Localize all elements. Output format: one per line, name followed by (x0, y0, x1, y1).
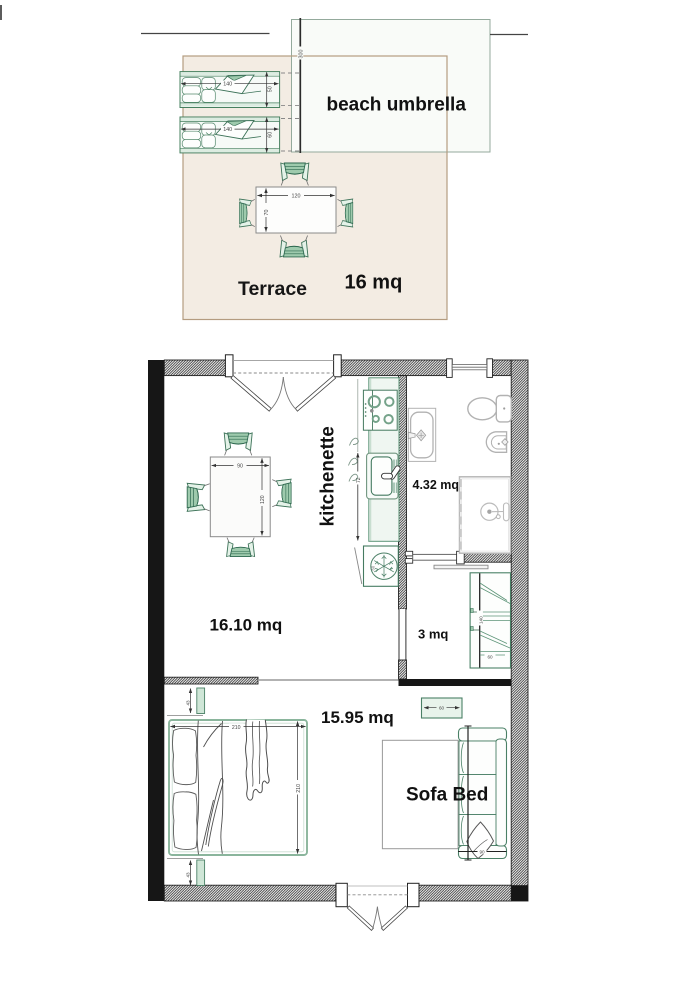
svg-text:120: 120 (292, 194, 301, 200)
svg-text:72: 72 (356, 477, 362, 483)
svg-text:Sofa Bed: Sofa Bed (406, 785, 488, 806)
svg-text:60: 60 (268, 132, 274, 138)
svg-text:beach umbrella: beach umbrella (327, 95, 467, 116)
svg-text:43: 43 (185, 872, 190, 878)
svg-text:60: 60 (487, 655, 493, 660)
svg-text:70: 70 (264, 210, 270, 216)
svg-text:210: 210 (296, 784, 302, 793)
svg-text:210: 210 (232, 725, 241, 731)
svg-text:60: 60 (371, 565, 376, 570)
svg-text:43: 43 (185, 700, 190, 706)
svg-text:16 mq: 16 mq (345, 272, 403, 294)
svg-text:16.10 mq: 16.10 mq (210, 616, 283, 635)
svg-text:60: 60 (439, 706, 445, 711)
svg-text:50: 50 (268, 86, 274, 92)
svg-text:kitchenette: kitchenette (318, 426, 339, 526)
svg-text:90: 90 (237, 463, 243, 469)
svg-text:15.95 mq: 15.95 mq (321, 708, 394, 727)
svg-text:90: 90 (479, 850, 485, 855)
svg-text:300: 300 (298, 50, 304, 59)
svg-text:4.32 mq: 4.32 mq (413, 478, 460, 492)
svg-text:3 mq: 3 mq (418, 627, 448, 642)
svg-text:140: 140 (478, 616, 483, 624)
svg-text:Terrace: Terrace (238, 278, 307, 300)
svg-text:120: 120 (260, 495, 266, 504)
